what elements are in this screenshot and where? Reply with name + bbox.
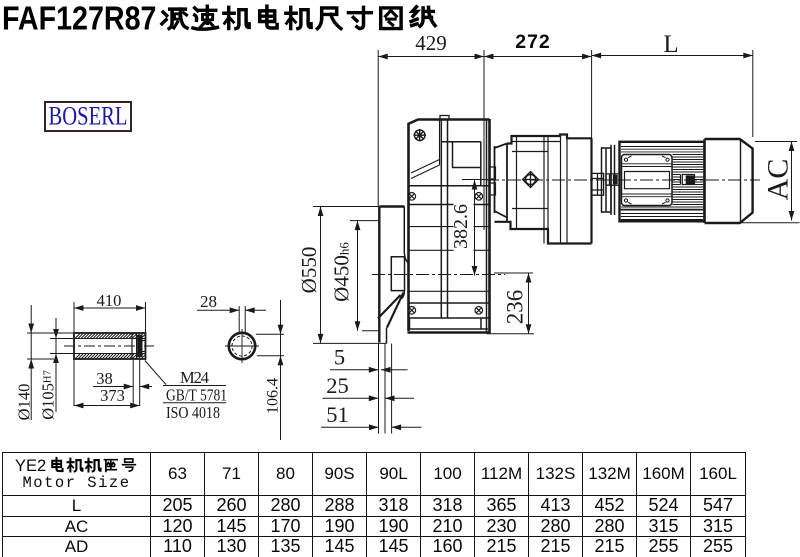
svg-text:ISO 4018: ISO 4018 — [166, 403, 220, 422]
svg-text:AC: AC — [762, 159, 795, 201]
svg-text:272: 272 — [515, 31, 551, 53]
svg-text:5: 5 — [334, 345, 345, 370]
svg-text:25: 25 — [326, 373, 349, 398]
svg-text:Ø550: Ø550 — [297, 247, 321, 294]
svg-text:Ø105H7: Ø105H7 — [39, 370, 58, 420]
svg-text:L: L — [663, 31, 678, 58]
svg-text:GB/T 5781: GB/T 5781 — [166, 386, 227, 405]
svg-text:BOSERL: BOSERL — [49, 103, 128, 130]
svg-text:410: 410 — [97, 291, 122, 310]
svg-text:51: 51 — [326, 402, 349, 427]
svg-text:Ø450h6: Ø450h6 — [330, 242, 354, 302]
svg-text:Ø140: Ø140 — [15, 384, 34, 421]
svg-text:M24: M24 — [180, 368, 209, 387]
svg-text:382.6: 382.6 — [450, 204, 472, 249]
svg-text:106.4: 106.4 — [265, 378, 282, 414]
svg-text:236: 236 — [503, 290, 528, 325]
svg-text:373: 373 — [100, 386, 125, 405]
svg-text:28: 28 — [200, 292, 217, 311]
svg-text:FAF127R87: FAF127R87 — [2, 1, 157, 37]
svg-text:YE2: YE2 — [15, 457, 46, 474]
